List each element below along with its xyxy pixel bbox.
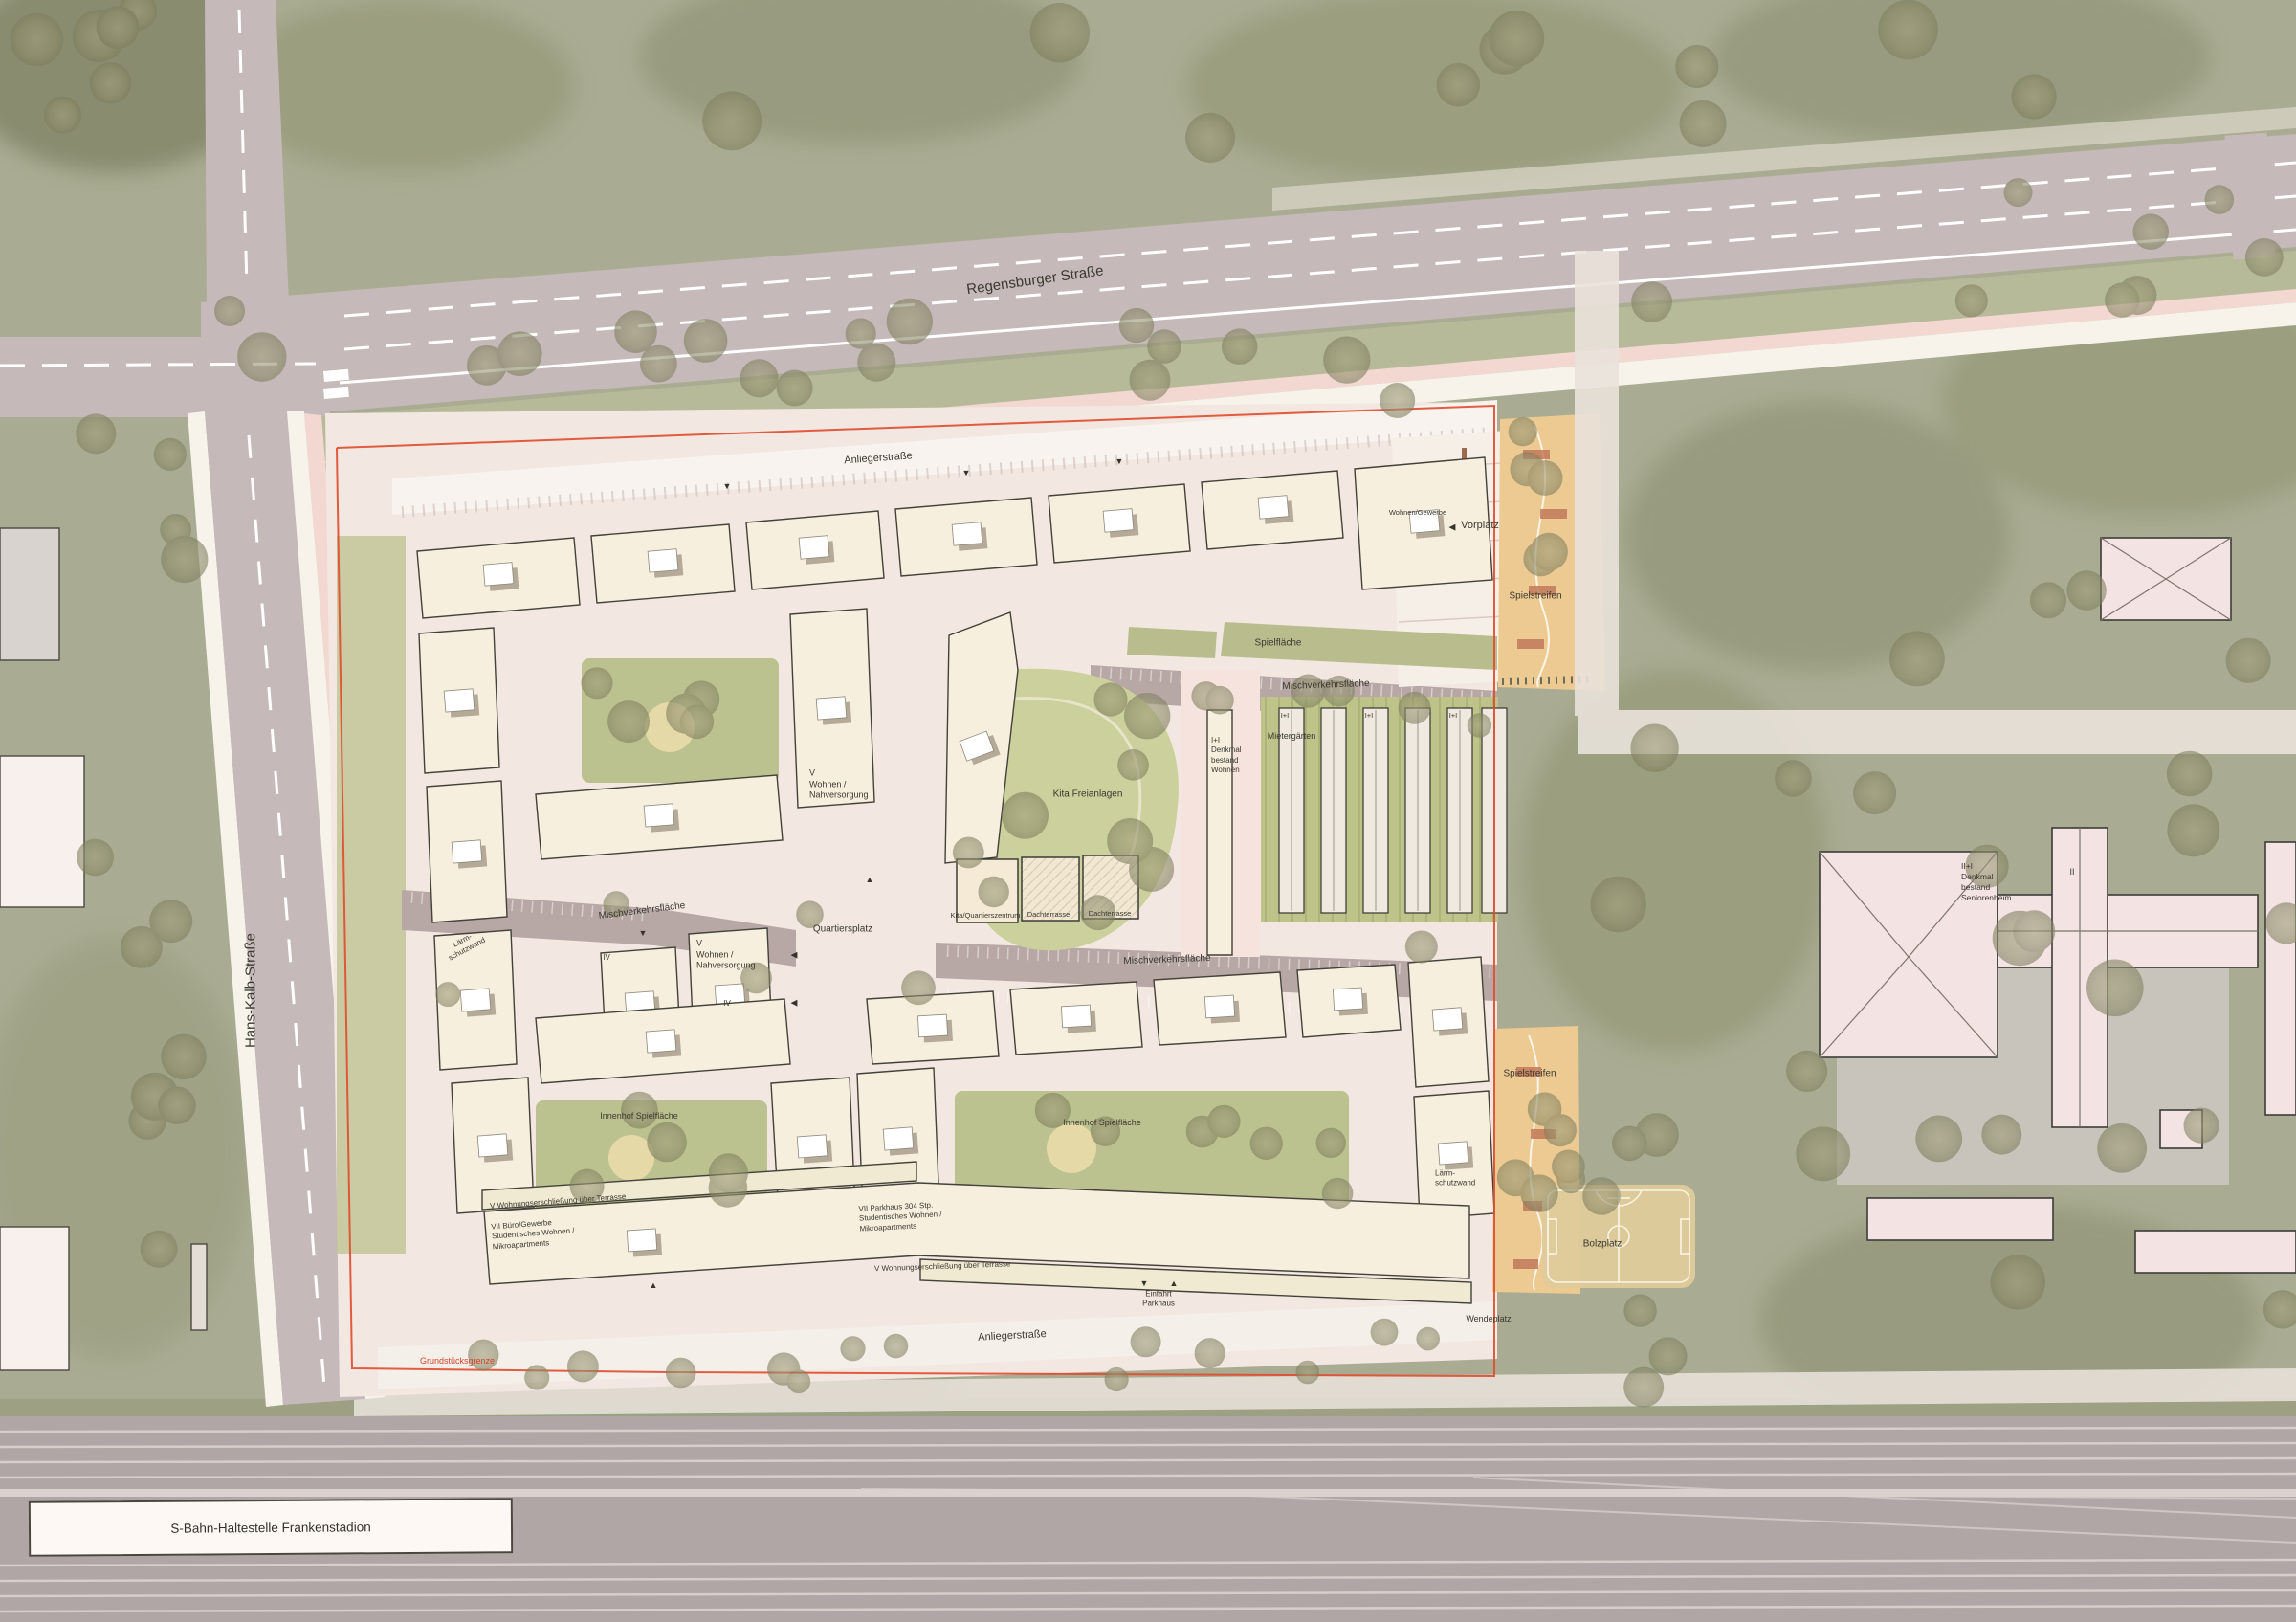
tree — [1107, 818, 1153, 864]
tree — [978, 877, 1008, 907]
rooftop-structure — [444, 689, 475, 712]
tree — [2205, 185, 2235, 214]
tree — [1623, 1367, 1664, 1408]
tree — [567, 1350, 599, 1382]
tree — [1489, 11, 1544, 66]
rooftop-structure — [1409, 510, 1440, 534]
tree — [604, 891, 629, 917]
rooftop-structure — [1103, 509, 1134, 532]
tree — [1124, 693, 1170, 739]
tree — [786, 1369, 810, 1393]
tree — [2012, 74, 2057, 119]
tree — [2167, 751, 2212, 796]
tree — [680, 705, 715, 740]
tree — [1371, 1319, 1399, 1346]
tree — [1649, 1337, 1688, 1375]
rooftop-structure — [1204, 995, 1234, 1018]
tree — [1250, 1127, 1283, 1160]
rooftop-structure — [648, 549, 678, 572]
tree — [666, 1358, 696, 1389]
tree — [1786, 1051, 1827, 1092]
tree — [2226, 638, 2271, 683]
tree — [647, 1122, 687, 1163]
rooftop-structure — [460, 989, 491, 1011]
tree — [1323, 337, 1370, 384]
tree — [1185, 113, 1235, 163]
tree — [1509, 417, 1537, 446]
tree — [709, 1153, 748, 1192]
tree — [1981, 1115, 2021, 1155]
tree — [1582, 1177, 1621, 1215]
tree — [161, 536, 208, 583]
tree — [1105, 1367, 1129, 1391]
tree — [1091, 1117, 1120, 1146]
tree — [887, 299, 933, 344]
tree — [570, 1169, 605, 1204]
rooftop-structure — [644, 804, 674, 827]
tree — [1955, 284, 1988, 317]
rooftop-structure — [452, 840, 482, 863]
tree — [2263, 1290, 2296, 1328]
tree — [857, 344, 895, 382]
tree — [435, 982, 460, 1007]
tree — [497, 331, 542, 376]
tree — [1623, 1294, 1656, 1326]
rooftop-structure — [646, 1030, 676, 1053]
rooftop-structure — [799, 536, 829, 560]
tree — [1416, 1327, 1440, 1351]
tree — [1405, 931, 1438, 964]
tree — [161, 1034, 206, 1079]
tree — [76, 413, 116, 454]
rooftop-structure — [1438, 1142, 1468, 1165]
tree — [2066, 570, 2106, 610]
tree — [796, 900, 824, 928]
rooftop-structure — [883, 1127, 914, 1150]
tree — [2013, 910, 2055, 952]
tree — [1131, 1326, 1161, 1357]
rooftop-structure — [917, 1014, 947, 1037]
rooftop-structure — [797, 1135, 828, 1158]
tree — [2097, 1123, 2147, 1173]
tree — [1002, 792, 1049, 839]
tree — [141, 1231, 178, 1268]
tree — [1080, 895, 1115, 930]
tree — [640, 345, 677, 383]
tree — [884, 1334, 909, 1359]
tree — [2245, 238, 2284, 277]
tree — [1119, 308, 1154, 343]
tree — [1195, 1338, 1225, 1368]
tree — [97, 6, 140, 49]
tree — [2184, 1108, 2219, 1144]
tree — [1889, 632, 1945, 687]
tree — [1316, 1128, 1346, 1158]
tree — [614, 310, 657, 353]
tree — [1775, 760, 1812, 797]
tree — [1399, 692, 1431, 724]
tree — [1630, 724, 1678, 772]
tree — [468, 1340, 498, 1370]
tree — [607, 700, 650, 743]
tree — [1322, 1178, 1354, 1210]
sbahn-station-box: S-Bahn-Haltestelle Frankenstadion — [29, 1498, 513, 1557]
tree — [214, 296, 245, 326]
tree — [77, 839, 114, 877]
tree — [953, 837, 984, 869]
tree — [740, 359, 779, 397]
tree — [1680, 100, 1727, 147]
tree — [237, 332, 286, 381]
rooftop-structure — [483, 563, 514, 586]
rooftop-structure — [1258, 496, 1289, 519]
tree — [1796, 1127, 1850, 1182]
sbahn-station-label: S-Bahn-Haltestelle Frankenstadion — [170, 1520, 370, 1535]
tree — [1323, 676, 1355, 707]
tree — [1147, 329, 1181, 364]
tree — [1030, 3, 1090, 62]
tree — [44, 97, 81, 134]
tree — [621, 1092, 658, 1129]
tree — [1991, 1255, 2045, 1309]
tree — [1544, 1114, 1577, 1146]
tree — [1093, 682, 1127, 716]
rooftop-structure — [952, 522, 982, 545]
rooftop-structure — [1432, 1008, 1463, 1031]
tree — [1117, 749, 1149, 781]
tree — [1552, 1150, 1585, 1184]
building — [1207, 710, 1232, 955]
tree — [777, 370, 813, 407]
tree — [2004, 178, 2033, 207]
tree — [1130, 360, 1171, 401]
tree — [2030, 582, 2066, 618]
tree — [1528, 460, 1563, 496]
tree — [1591, 877, 1646, 932]
tree — [840, 1336, 865, 1361]
tree — [1853, 771, 1896, 814]
tree — [1468, 713, 1491, 737]
tree — [702, 91, 762, 150]
tree — [1291, 675, 1325, 708]
site-plan-graphics — [0, 0, 2296, 1622]
tree — [154, 438, 187, 471]
tree — [1437, 63, 1480, 106]
tree — [1530, 533, 1568, 571]
tree — [684, 319, 728, 363]
rooftop-structure — [1333, 988, 1362, 1011]
west-green-strip — [337, 536, 406, 1254]
rooftop-structure — [627, 1229, 656, 1252]
tree — [901, 970, 936, 1005]
tree — [581, 667, 612, 699]
tree — [1965, 845, 2008, 888]
tree — [149, 900, 192, 943]
tree — [1222, 328, 1258, 365]
tree — [2105, 282, 2139, 317]
tree — [1520, 1174, 1557, 1211]
tree — [740, 963, 772, 994]
tree — [1296, 1361, 1320, 1385]
tree — [1878, 0, 1938, 59]
tree — [1631, 281, 1672, 322]
tree — [158, 1086, 196, 1124]
tree — [846, 319, 876, 349]
tree — [1380, 383, 1415, 418]
tree — [1207, 1105, 1240, 1138]
tree — [11, 13, 63, 66]
tree — [2167, 804, 2219, 856]
tree — [1675, 45, 1718, 88]
rooftop-structure — [1061, 1005, 1091, 1028]
tree — [524, 1365, 549, 1389]
tree — [2132, 213, 2169, 250]
tree — [1205, 686, 1234, 715]
rooftop-structure — [477, 1134, 508, 1157]
tree — [1612, 1126, 1647, 1162]
site-plan-canvas: Regensburger StraßeHans-Kalb-StraßeAnlie… — [0, 0, 2296, 1622]
rooftop-structure — [816, 697, 847, 720]
tree — [1915, 1116, 1962, 1163]
tree — [2086, 960, 2144, 1017]
tree — [1035, 1093, 1071, 1128]
tree — [90, 62, 132, 104]
